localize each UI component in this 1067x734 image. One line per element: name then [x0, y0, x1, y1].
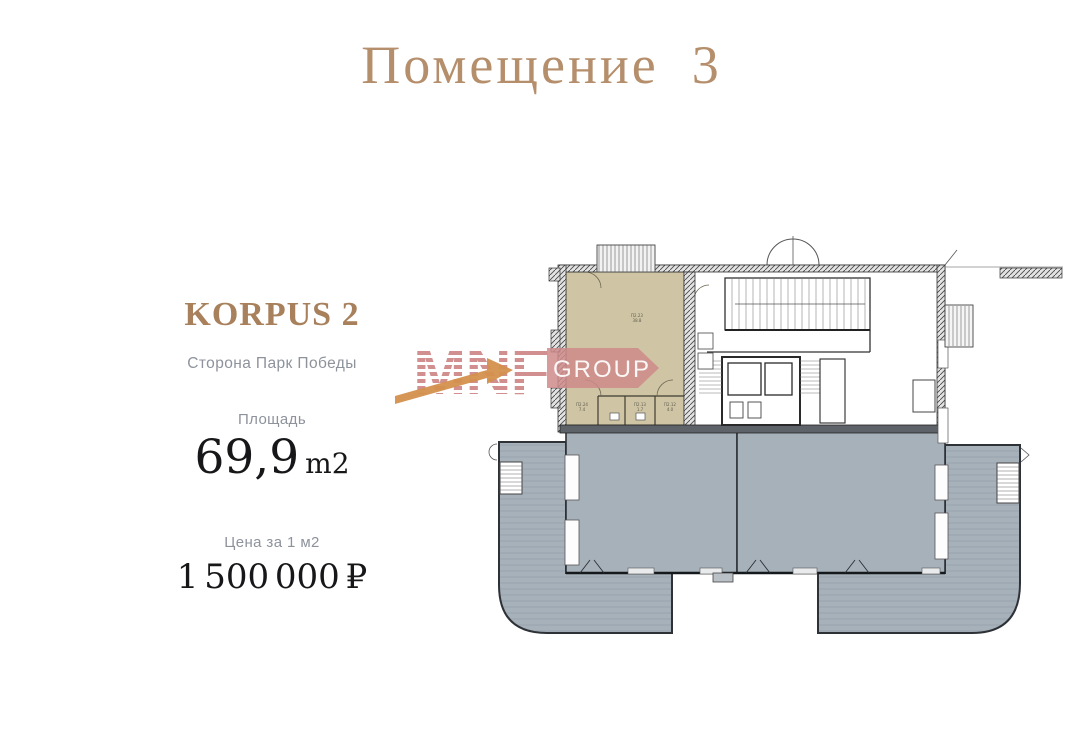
right-wing-closet — [913, 380, 935, 412]
center-step — [713, 573, 733, 582]
orientation-label: Сторона Парк Победы — [133, 355, 411, 373]
wall-core — [684, 272, 695, 432]
terrace-tick-right — [1021, 448, 1029, 462]
terrace-stairs-left — [500, 462, 522, 494]
watermark: MNF GROUP — [395, 330, 675, 410]
gray-room-left — [566, 432, 737, 573]
watermark-suffix-text: GROUP — [553, 356, 651, 383]
floor-plan-svg: П2.23 38.8 П2.24 7.4 П2.13 1.7 П2.12 4.0 — [485, 220, 1065, 650]
main-room-area: 38.8 — [633, 318, 642, 323]
area-label: Площадь — [133, 411, 411, 428]
entrance-porch-right — [945, 305, 973, 347]
gray-room-right — [737, 432, 945, 573]
area-value: 69,9 — [194, 430, 299, 485]
area-value-line: 69,9m2 — [133, 432, 411, 494]
watermark-svg: MNF GROUP — [395, 330, 675, 410]
area-unit: m2 — [305, 447, 349, 480]
entrance-porch-top — [597, 245, 655, 272]
wall-bottom — [560, 425, 945, 433]
balcony-bar — [1000, 268, 1062, 278]
floor-plan: П2.23 38.8 П2.24 7.4 П2.13 1.7 П2.12 4.0 — [485, 220, 1065, 650]
terrace-tick-left — [489, 444, 497, 460]
price-label: Цена за 1 м2 — [133, 534, 411, 551]
info-panel: KORPUS 2 Сторона Парк Победы Площадь 69,… — [133, 296, 411, 597]
corner-tick — [945, 250, 957, 265]
terrace-stairs-right — [997, 463, 1019, 503]
building-name: KORPUS 2 — [133, 296, 411, 334]
page-title: Помещение 3 — [0, 34, 1067, 96]
price-value: 1 500 000 ₽ — [133, 557, 411, 597]
